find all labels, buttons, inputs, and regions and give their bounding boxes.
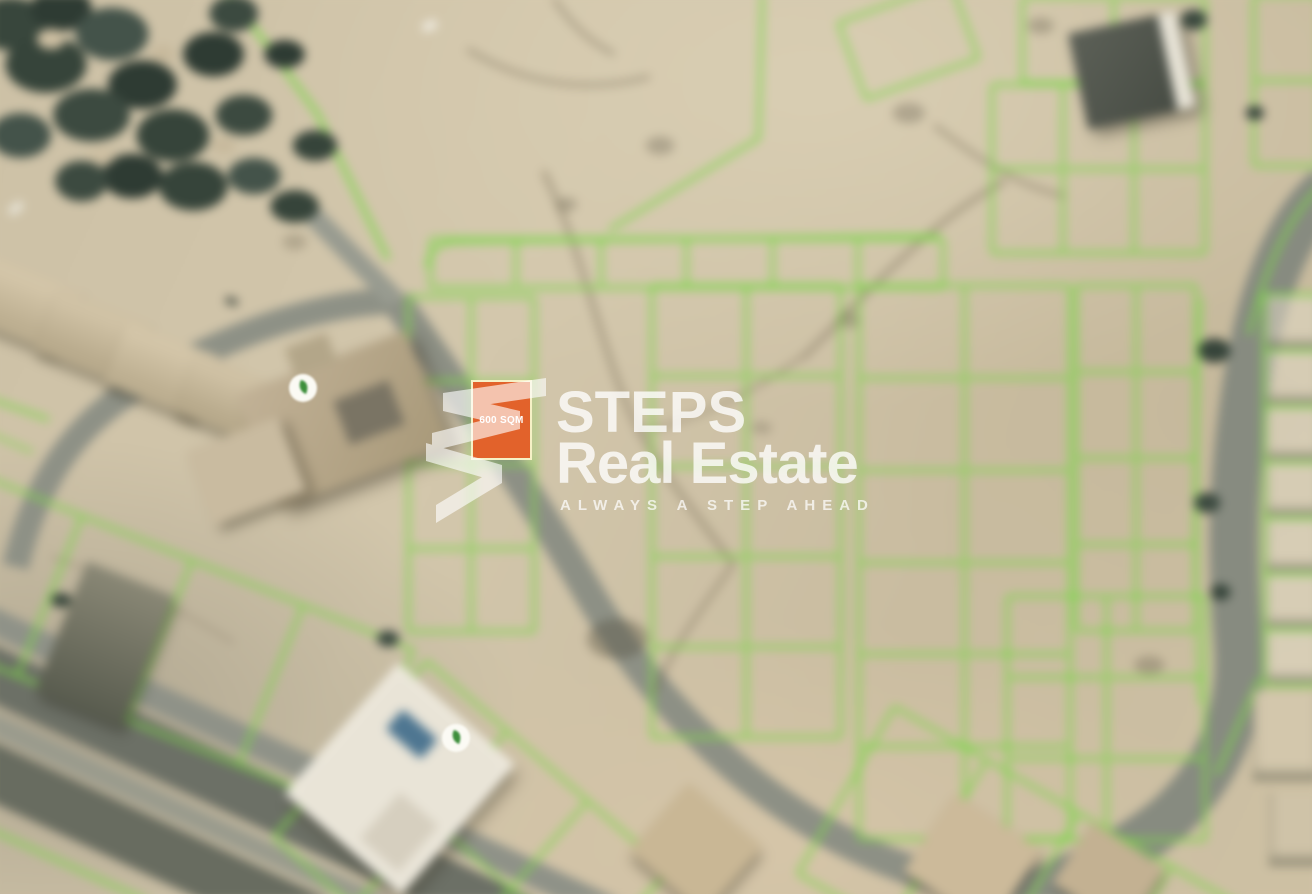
satellite-map-image: 600 SQM STEPS Real Estate ALWAYS A STEP … bbox=[0, 0, 1312, 894]
plot-area-label: 600 SQM bbox=[471, 380, 532, 460]
steps-logo-swoosh-icon bbox=[0, 0, 1312, 894]
listing-overlay: 600 SQM STEPS Real Estate ALWAYS A STEP … bbox=[0, 0, 1312, 894]
